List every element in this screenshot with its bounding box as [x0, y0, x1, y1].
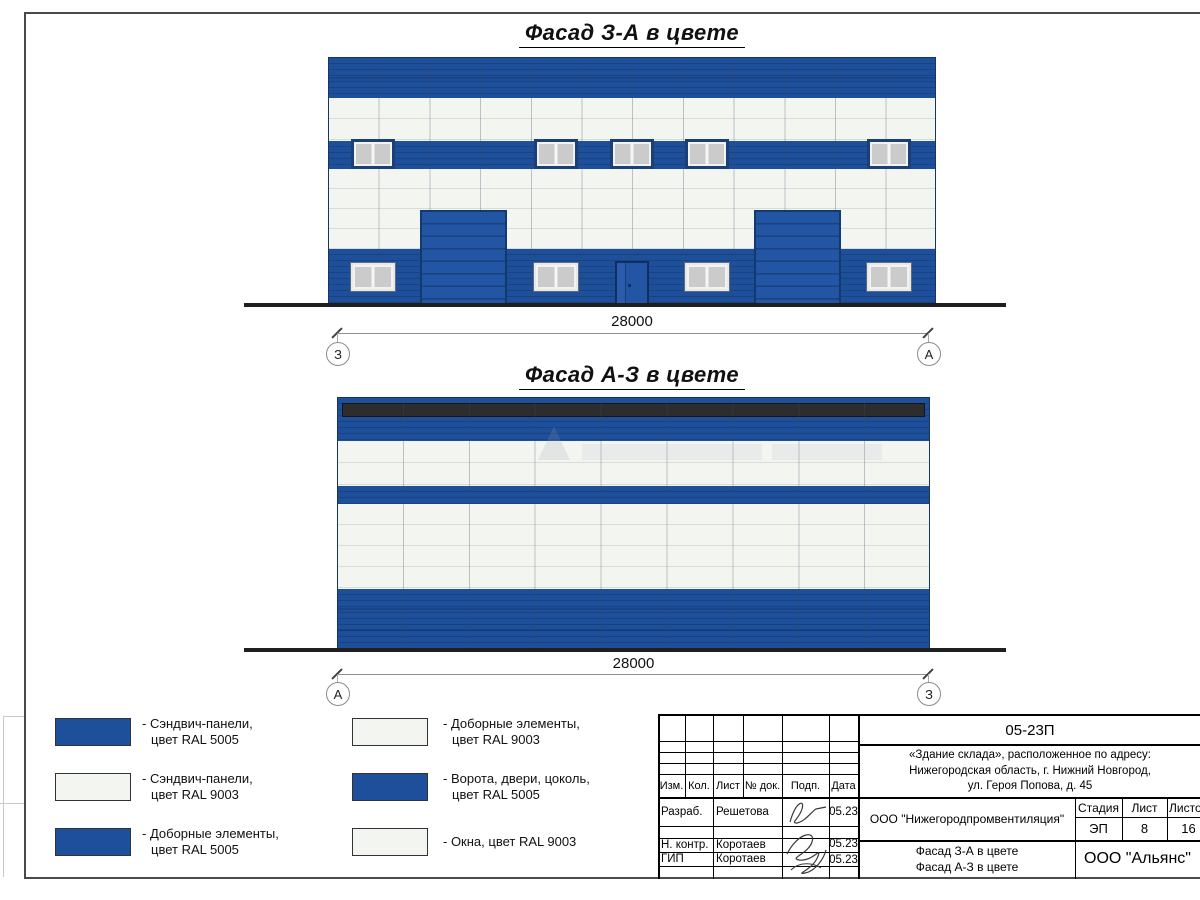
name-cell: Решетова — [716, 798, 780, 826]
legend-label: - Сэндвич-панели, цвет RAL 9003 — [142, 773, 253, 801]
legend-text: цвет RAL 5005 — [151, 842, 279, 858]
axis-letter: З — [925, 687, 933, 702]
side-stamp-line — [0, 803, 24, 804]
legend-text: цвет RAL 5005 — [151, 732, 253, 748]
project-line: «Здание склада», расположенное по адресу… — [909, 748, 1151, 764]
extension-line — [337, 333, 338, 342]
facade-elevation-za — [328, 57, 936, 305]
date-cell: 05.23 — [829, 836, 858, 852]
col-header-podp: Подп. — [782, 776, 829, 796]
legend-swatch — [55, 828, 131, 856]
legend-text: - Ворота, двери, цоколь, — [443, 771, 590, 787]
legend-label: - Доборные элементы, цвет RAL 9003 — [443, 718, 580, 746]
line — [713, 714, 714, 879]
legend-swatch — [352, 718, 428, 746]
axis-letter: А — [925, 347, 934, 362]
frame-bottom — [24, 877, 1200, 879]
dimension-label: 28000 — [337, 655, 930, 672]
sheet-title-line: Фасад З-А в цвете — [916, 843, 1019, 859]
org-name: ООО "Альянс" — [1075, 841, 1200, 877]
sheets-value: 16 — [1167, 817, 1200, 840]
watermark — [772, 444, 882, 460]
ground-line — [244, 648, 1006, 652]
project-line: ул. Героя Попова, д. 45 — [968, 779, 1093, 795]
window — [351, 139, 395, 169]
legend-text: - Окна, цвет RAL 9003 — [443, 834, 576, 850]
legend-label: - Сэндвич-панели, цвет RAL 5005 — [142, 718, 253, 746]
watermark — [538, 426, 570, 460]
role-cell: Разраб. — [661, 798, 711, 826]
doc-number: 05-23П — [860, 716, 1200, 744]
legend-text: цвет RAL 9003 — [151, 787, 253, 803]
project-line: Нижегородская область, г. Нижний Новгоро… — [909, 764, 1151, 780]
sheet-title-line: Фасад А-З в цвете — [916, 859, 1019, 875]
date-cell: 05.23 — [829, 798, 858, 826]
frame-top — [24, 12, 1200, 14]
dimension-label: 28000 — [328, 313, 936, 330]
legend-swatch — [55, 718, 131, 746]
legend-text: - Сэндвич-панели, — [142, 716, 253, 732]
window — [534, 139, 578, 169]
dimension-line — [337, 333, 928, 334]
panel-joints — [338, 398, 929, 649]
axis-marker: А — [326, 682, 350, 706]
facade-elevation-az — [337, 397, 930, 650]
frame-left — [24, 12, 26, 879]
drawing-sheet: Фасад З-А в цвете 28000 З А — [0, 0, 1200, 900]
facade1-title: Фасад З-А в цвете — [328, 20, 936, 46]
axis-marker: З — [917, 682, 941, 706]
sectional-gate — [754, 210, 841, 306]
project-address: «Здание склада», расположенное по адресу… — [860, 746, 1200, 797]
role-cell: ГИП — [661, 852, 711, 866]
sheet-label: Лист — [1122, 798, 1167, 817]
line — [658, 741, 858, 742]
side-stamp-line — [3, 716, 4, 877]
extension-line — [928, 674, 929, 682]
designer-company: ООО "Нижегородпромвентиляция" — [860, 798, 1074, 840]
stage-value: ЭП — [1075, 817, 1122, 840]
window — [867, 263, 911, 291]
line — [658, 774, 858, 775]
line — [658, 763, 858, 764]
legend-label: - Доборные элементы, цвет RAL 5005 — [142, 828, 279, 856]
side-stamp-line — [3, 716, 24, 717]
dimension-line — [337, 674, 928, 675]
axis-letter: З — [334, 347, 342, 362]
name-cell: Коротаев — [716, 852, 780, 866]
facade2-title: Фасад А-З в цвете — [328, 362, 936, 388]
extension-line — [337, 674, 338, 682]
stage-label: Стадия — [1075, 798, 1122, 817]
legend-label: - Ворота, двери, цоколь, цвет RAL 5005 — [443, 773, 590, 801]
signature — [781, 794, 831, 878]
axis-letter: А — [334, 687, 343, 702]
col-header-data: Дата — [829, 776, 858, 796]
role-cell: Н. контр. — [661, 838, 711, 852]
legend-text: - Доборные элементы, — [142, 826, 279, 842]
legend-text: - Сэндвич-панели, — [142, 771, 253, 787]
name-cell: Коротаев — [716, 838, 780, 852]
legend-label: - Окна, цвет RAL 9003 — [443, 828, 576, 856]
legend-swatch — [55, 773, 131, 801]
col-header-doc: № док. — [743, 776, 782, 796]
sheets-label: Листов — [1167, 798, 1200, 817]
legend-text: цвет RAL 9003 — [452, 732, 580, 748]
legend-swatch — [352, 773, 428, 801]
window — [685, 263, 729, 291]
window — [867, 139, 911, 169]
sheet-title: Фасад З-А в цвете Фасад А-З в цвете — [860, 841, 1074, 877]
extension-line — [928, 333, 929, 342]
watermark — [582, 444, 762, 460]
legend-text: - Доборные элементы, — [443, 716, 580, 732]
window — [534, 263, 578, 291]
door-handle-icon — [628, 284, 631, 287]
window — [610, 139, 654, 169]
legend-swatch — [352, 828, 428, 856]
col-header-izm: Изм. — [658, 776, 685, 796]
ground-line — [244, 303, 1006, 307]
line — [658, 752, 858, 753]
window — [351, 263, 395, 291]
date-cell: 05.23 — [829, 852, 858, 868]
entrance-door — [615, 261, 649, 306]
col-header-kol: Кол. — [685, 776, 713, 796]
window — [685, 139, 729, 169]
col-header-list: Лист — [713, 776, 743, 796]
sectional-gate — [420, 210, 507, 306]
legend-text: цвет RAL 5005 — [452, 787, 590, 803]
sheet-value: 8 — [1122, 817, 1167, 840]
